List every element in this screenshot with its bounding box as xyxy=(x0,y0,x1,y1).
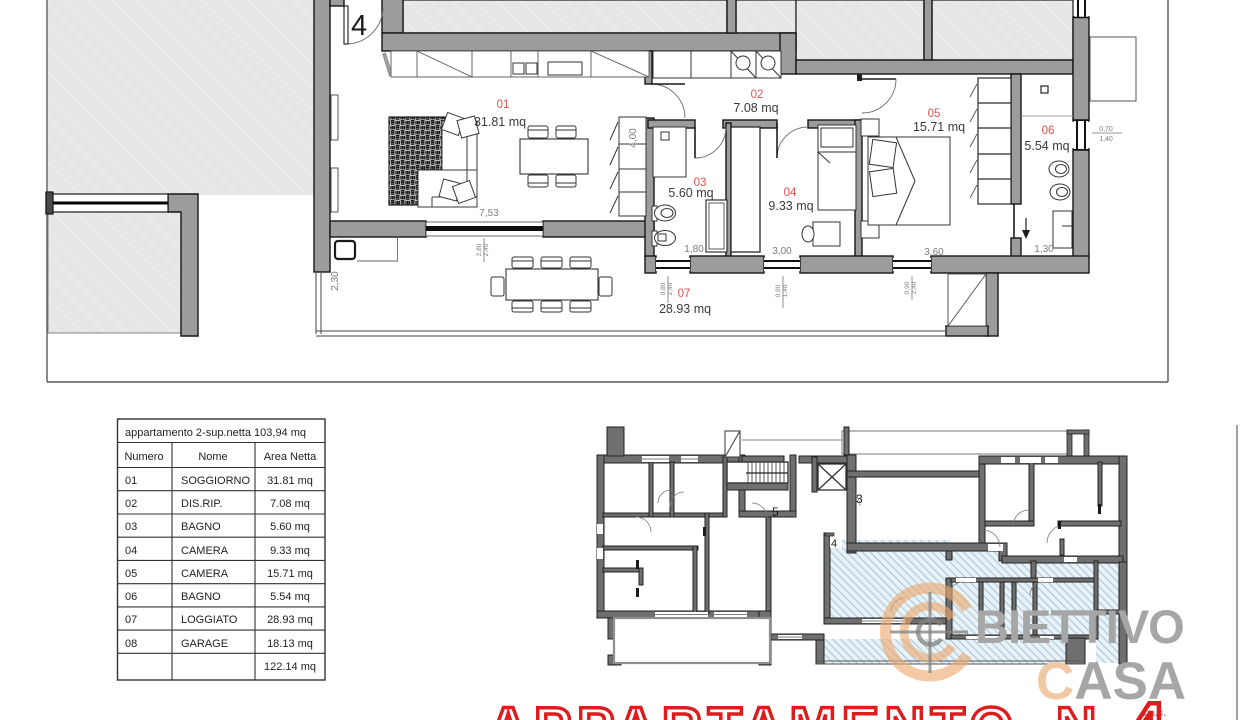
svg-text:04: 04 xyxy=(784,187,797,199)
svg-text:DIS.RIP.: DIS.RIP. xyxy=(181,498,222,510)
svg-text:5.60 mq: 5.60 mq xyxy=(270,521,310,533)
svg-text:07: 07 xyxy=(678,288,691,300)
svg-text:08: 08 xyxy=(125,638,137,650)
svg-text:31.81 mq: 31.81 mq xyxy=(474,115,526,129)
svg-text:GARAGE: GARAGE xyxy=(181,638,228,650)
svg-text:2,40: 2,40 xyxy=(667,282,674,295)
svg-text:1,40: 1,40 xyxy=(1099,136,1113,143)
svg-text:9.33 mq: 9.33 mq xyxy=(768,199,813,213)
svg-text:0,70: 0,70 xyxy=(1099,126,1113,133)
svg-text:Numero: Numero xyxy=(124,451,163,463)
svg-text:01: 01 xyxy=(125,475,137,487)
svg-text:02: 02 xyxy=(751,89,764,101)
svg-text:06: 06 xyxy=(1042,125,1055,137)
svg-text:4: 4 xyxy=(831,538,837,550)
svg-text:7.08 mq: 7.08 mq xyxy=(733,101,778,115)
svg-text:04: 04 xyxy=(125,545,137,557)
svg-text:07: 07 xyxy=(125,614,137,626)
svg-text:5.60 mq: 5.60 mq xyxy=(668,186,713,200)
svg-text:2,40: 2,40 xyxy=(483,243,490,256)
svg-text:1,80: 1,80 xyxy=(684,244,704,255)
svg-text:18.13 mq: 18.13 mq xyxy=(267,638,313,650)
svg-text:0,80: 0,80 xyxy=(660,282,667,295)
svg-text:5: 5 xyxy=(772,505,779,519)
svg-text:appartamento 2-sup.netta 103,9: appartamento 2-sup.netta 103,94 mq xyxy=(125,427,306,439)
svg-text:BIETTIVO: BIETTIVO xyxy=(975,600,1184,653)
svg-text:7.08 mq: 7.08 mq xyxy=(270,498,310,510)
svg-text:4,00: 4,00 xyxy=(628,128,639,148)
svg-text:03: 03 xyxy=(125,521,137,533)
svg-text:5.54 mq: 5.54 mq xyxy=(1024,139,1069,153)
svg-text:BAGNO: BAGNO xyxy=(181,521,221,533)
svg-text:01: 01 xyxy=(497,99,510,111)
svg-text:15.71 mq: 15.71 mq xyxy=(267,568,313,580)
svg-text:2,80: 2,80 xyxy=(476,243,483,256)
svg-text:3,00: 3,00 xyxy=(772,246,792,257)
svg-text:06: 06 xyxy=(125,591,137,603)
svg-text:APPARTAMENTO: APPARTAMENTO xyxy=(488,695,1013,720)
svg-text:Area Netta: Area Netta xyxy=(264,451,317,463)
svg-text:4: 4 xyxy=(1130,691,1165,720)
svg-text:0,90: 0,90 xyxy=(904,281,911,294)
svg-text:SOGGIORNO: SOGGIORNO xyxy=(181,475,251,487)
svg-text:3,60: 3,60 xyxy=(924,247,944,258)
svg-text:BAGNO: BAGNO xyxy=(181,591,221,603)
svg-text:122.14 mq: 122.14 mq xyxy=(264,661,316,673)
svg-text:5.54 mq: 5.54 mq xyxy=(270,591,310,603)
svg-text:05: 05 xyxy=(928,108,941,120)
svg-text:Nome: Nome xyxy=(198,451,227,463)
svg-text:0,90: 0,90 xyxy=(775,284,782,297)
svg-text:2,30: 2,30 xyxy=(330,271,341,291)
svg-text:28.93 mq: 28.93 mq xyxy=(267,614,313,626)
svg-text:1,40: 1,40 xyxy=(782,284,789,297)
svg-text:2,40: 2,40 xyxy=(911,281,918,294)
svg-text:05: 05 xyxy=(125,568,137,580)
svg-text:4: 4 xyxy=(351,10,367,42)
svg-text:N.: N. xyxy=(1056,695,1128,720)
svg-text:1,30: 1,30 xyxy=(1034,244,1054,255)
svg-text:LOGGIATO: LOGGIATO xyxy=(181,614,238,626)
svg-text:CAMERA: CAMERA xyxy=(181,545,229,557)
svg-text:15.71 mq: 15.71 mq xyxy=(913,120,965,134)
svg-text:CAMERA: CAMERA xyxy=(181,568,229,580)
svg-text:02: 02 xyxy=(125,498,137,510)
svg-text:31.81 mq: 31.81 mq xyxy=(267,475,313,487)
svg-text:28.93 mq: 28.93 mq xyxy=(659,302,711,316)
svg-text:7,53: 7,53 xyxy=(479,208,499,219)
svg-text:9.33 mq: 9.33 mq xyxy=(270,545,310,557)
